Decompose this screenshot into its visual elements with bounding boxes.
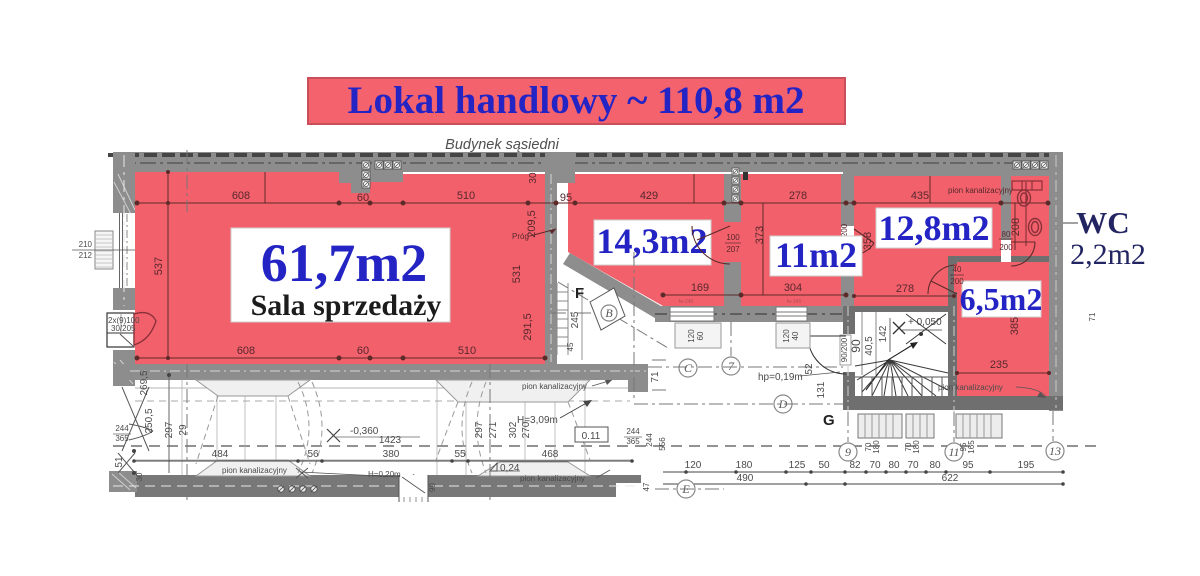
svg-text:131: 131 [816,381,827,398]
svg-text:95: 95 [560,192,572,204]
svg-text:pion kanalizacyjny: pion kanalizacyjny [222,466,287,475]
svg-text:195: 195 [1018,460,1035,471]
svg-text:Próg: Próg [512,232,529,241]
svg-text:pion kanalizacyjny: pion kanalizacyjny [948,186,1013,195]
svg-text:250,5: 250,5 [144,408,155,433]
svg-text:H=0,20m: H=0,20m [368,470,401,479]
svg-text:0.11: 0.11 [582,431,601,442]
svg-text:80: 80 [929,460,941,471]
svg-text:H=3,09m: H=3,09m [517,415,558,426]
svg-text:95: 95 [962,460,974,471]
svg-text:556: 556 [658,437,667,451]
svg-text:30/205: 30/205 [111,324,136,333]
svg-text:hp=0,19m: hp=0,19m [758,372,803,383]
svg-text:Budynek sąsiedni: Budynek sąsiedni [445,137,559,153]
svg-text:245: 245 [570,311,581,328]
svg-text:G: G [823,412,835,429]
svg-text:297: 297 [164,421,175,438]
svg-text:-0,360: -0,360 [350,426,379,437]
svg-text:365: 365 [626,437,640,446]
svg-text:+ 0,050: + 0,050 [908,317,942,328]
svg-text:45: 45 [566,342,575,351]
svg-text:80: 80 [888,460,900,471]
svg-text:fw 240: fw 240 [679,299,694,305]
svg-text:180: 180 [736,460,753,471]
svg-text:Sala sprzedaży: Sala sprzedaży [251,289,442,322]
svg-text:210: 210 [79,240,93,249]
svg-text:90/200: 90/200 [840,337,849,362]
svg-text:12,8m2: 12,8m2 [879,208,990,248]
svg-text:278: 278 [896,283,914,295]
svg-text:429: 429 [640,190,658,202]
svg-text:207: 207 [726,245,740,254]
svg-text:WC: WC [1076,205,1129,240]
svg-text:120: 120 [687,329,696,343]
svg-text:pion kanalizacyjny: pion kanalizacyjny [522,382,587,391]
svg-text:2,2m2: 2,2m2 [1070,238,1146,271]
svg-text:13: 13 [1049,444,1061,458]
svg-text:165: 165 [967,440,976,454]
svg-text:B: B [605,306,613,320]
svg-text:537: 537 [153,257,165,275]
svg-text:169: 169 [691,282,709,294]
svg-text:468: 468 [542,449,559,460]
svg-text:60: 60 [357,345,369,357]
svg-text:297: 297 [474,421,485,438]
svg-text:244: 244 [115,424,129,433]
svg-text:30: 30 [135,472,144,481]
svg-text:244: 244 [626,427,640,436]
svg-text:71: 71 [1088,312,1097,321]
svg-text:291,5: 291,5 [522,313,534,341]
svg-text:208: 208 [1010,218,1022,236]
svg-text:11: 11 [948,445,959,459]
svg-text:484: 484 [212,449,229,460]
svg-text:180: 180 [912,440,921,454]
svg-text:125: 125 [789,460,806,471]
svg-text:358: 358 [862,232,874,250]
svg-text:60: 60 [357,192,369,204]
svg-text:61,7m2: 61,7m2 [261,233,427,293]
svg-text:60: 60 [696,331,705,340]
svg-text:510: 510 [457,190,475,202]
svg-text:142: 142 [878,325,889,342]
svg-text:278: 278 [789,190,807,202]
svg-text:50: 50 [818,460,830,471]
svg-text:608: 608 [232,190,250,202]
svg-text:120: 120 [782,329,791,343]
svg-text:200: 200 [999,243,1013,252]
svg-text:56: 56 [307,449,319,460]
svg-text:269,5: 269,5 [139,370,150,395]
svg-text:14,3m2: 14,3m2 [597,221,708,261]
svg-text:pion kanalizacyjny: pion kanalizacyjny [520,474,585,483]
svg-text:510: 510 [458,345,476,357]
svg-text:55: 55 [454,449,466,460]
svg-text:pion kanalizacyjny: pion kanalizacyjny [938,383,1003,392]
svg-text:200: 200 [950,277,964,286]
svg-text:fw 240: fw 240 [787,299,802,305]
svg-text:7: 7 [728,359,735,373]
svg-text:40: 40 [953,265,962,274]
svg-text:70: 70 [907,460,919,471]
svg-text:11m2: 11m2 [775,235,857,275]
svg-text:531: 531 [511,265,523,283]
svg-text:52: 52 [804,363,815,375]
svg-text:90: 90 [428,483,437,492]
svg-text:9: 9 [845,445,851,459]
svg-text:71: 71 [650,371,661,383]
svg-text:380: 380 [383,449,400,460]
svg-text:490: 490 [737,473,754,484]
svg-text:244: 244 [645,433,654,447]
svg-text:40,5: 40,5 [864,336,875,356]
svg-text:435: 435 [911,190,929,202]
svg-text:235: 235 [990,359,1008,371]
svg-text:385: 385 [1009,317,1021,335]
svg-text:304: 304 [784,282,802,294]
svg-text:82: 82 [849,460,861,471]
svg-text:80: 80 [1002,230,1011,239]
svg-text:40: 40 [791,331,800,340]
svg-text:373: 373 [754,226,766,244]
svg-text:C: C [684,361,693,375]
svg-text:212: 212 [79,251,93,260]
svg-text:622: 622 [942,473,959,484]
svg-text:180: 180 [872,440,881,454]
svg-text:70: 70 [869,460,881,471]
svg-text:30: 30 [528,172,539,184]
svg-text:6,5m2: 6,5m2 [960,281,1043,317]
svg-text:F: F [575,285,584,302]
svg-text:0,24: 0,24 [500,463,520,474]
svg-text:100: 100 [726,233,740,242]
svg-text:Lokal handlowy ~ 110,8 m2: Lokal handlowy ~ 110,8 m2 [348,79,805,122]
svg-text:47: 47 [642,482,651,491]
svg-text:365: 365 [115,434,129,443]
svg-text:51: 51 [114,456,125,468]
svg-text:1423: 1423 [379,435,402,446]
svg-text:608: 608 [237,345,255,357]
svg-text:120: 120 [685,460,702,471]
